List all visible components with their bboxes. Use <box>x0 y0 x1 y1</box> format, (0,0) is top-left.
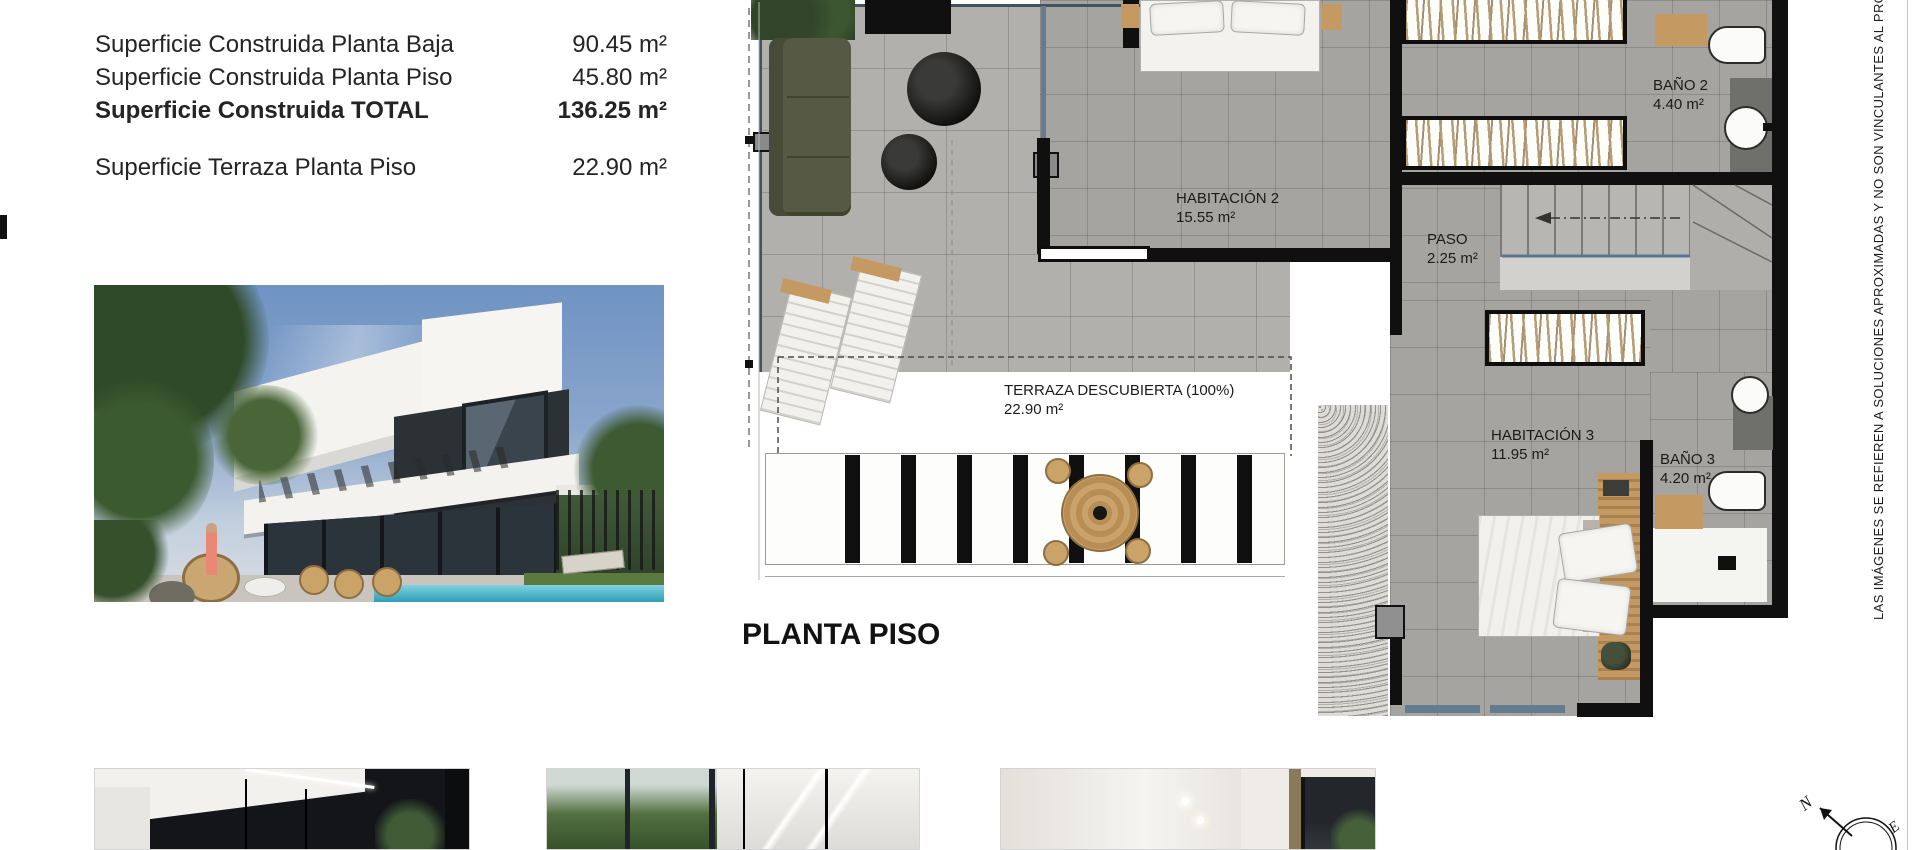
room-area: 22.90 m² <box>1004 400 1234 419</box>
pillow <box>1552 578 1632 637</box>
surface-value: 22.90 m² <box>572 151 667 184</box>
room-area: 2.25 m² <box>1427 249 1478 268</box>
toilet-bath2 <box>1708 26 1766 64</box>
window-glazing <box>1041 6 1046 138</box>
wall <box>1390 185 1402 335</box>
plants-through-glass <box>375 799 445 850</box>
window-mullion <box>709 769 715 850</box>
room-label-habitacion3: HABITACIÓN 3 11.95 m² <box>1491 426 1594 464</box>
pergola-beam <box>957 455 972 563</box>
pendant-wire <box>305 789 307 850</box>
slab-edge-line <box>765 576 1285 577</box>
pillow <box>1149 0 1225 36</box>
ceiling-spotlight <box>1181 797 1189 805</box>
surface-label: Superficie Construida TOTAL <box>95 94 429 127</box>
room-name: BAÑO 2 <box>1653 76 1708 95</box>
wardrobe-white <box>95 787 150 850</box>
nightstand-items <box>1601 642 1631 670</box>
wicker-chair2 <box>334 569 364 599</box>
room-area: 4.20 m² <box>1660 469 1715 488</box>
planter-foliage <box>751 0 855 40</box>
wall <box>1640 440 1653 716</box>
left-edge-mark <box>0 215 7 239</box>
room-area: 11.95 m² <box>1491 445 1594 464</box>
wall <box>1653 605 1788 618</box>
dining-chair <box>1125 538 1151 564</box>
room-name: PASO <box>1427 230 1478 249</box>
gravel-strip <box>1318 405 1388 716</box>
interior-photo-2 <box>546 768 920 850</box>
pergola-beam <box>1181 455 1196 563</box>
house-exterior-photo <box>94 285 664 602</box>
room-area: 15.55 m² <box>1176 208 1279 227</box>
dining-chair <box>1045 458 1071 484</box>
terrace-rail-left <box>759 4 762 372</box>
sink-bath3 <box>1731 376 1769 414</box>
wardrobe <box>1402 116 1627 170</box>
door-block <box>1375 605 1405 639</box>
pergola-beam <box>901 455 916 563</box>
brochure-page: Superficie Construida Planta Baja 90.45 … <box>0 0 1920 850</box>
table-row-total: Superficie Construida TOTAL 136.25 m² <box>95 94 667 127</box>
table-row: Superficie Construida Planta Piso 45.80 … <box>95 61 667 94</box>
interior-photo-3 <box>1000 768 1376 850</box>
room-label-terraza: TERRAZA DESCUBIERTA (100%) 22.90 m² <box>1004 381 1234 419</box>
surface-value: 90.45 m² <box>572 28 667 61</box>
surface-label: Superficie Construida Planta Baja <box>95 28 454 61</box>
wall <box>1390 0 1402 172</box>
faucet <box>1763 123 1779 131</box>
pendant-wire <box>245 779 247 850</box>
window-left <box>547 769 717 850</box>
pendant-wire <box>825 769 828 850</box>
room-name: HABITACIÓN 3 <box>1491 426 1594 445</box>
ceiling-led-diagonal <box>717 769 920 850</box>
wall <box>1390 639 1402 705</box>
nightstand-items <box>1603 480 1629 496</box>
bushes-left-foreground <box>94 520 169 602</box>
window-glazing <box>1490 705 1565 713</box>
wall <box>1150 248 1402 262</box>
pillow <box>1230 0 1306 36</box>
white-gap-strip <box>1290 372 1318 716</box>
wardrobe <box>1402 0 1627 44</box>
surface-areas-table: Superficie Construida Planta Baja 90.45 … <box>95 28 667 184</box>
dark-wall-right <box>445 769 470 850</box>
room-name: HABITACIÓN 2 <box>1176 189 1279 208</box>
vanity-bath3 <box>1655 495 1703 529</box>
room-area: 4.40 m² <box>1653 95 1708 114</box>
room-label-bano2: BAÑO 2 4.40 m² <box>1653 76 1708 114</box>
sofa-cushion-line <box>787 156 849 158</box>
planter-wall <box>865 0 951 34</box>
wicker-chair1 <box>299 565 329 595</box>
hallway-wall <box>1001 769 1241 850</box>
wicker-chair3 <box>372 567 402 597</box>
table-center <box>1093 506 1107 520</box>
wall <box>1390 172 1780 185</box>
surface-value: 45.80 m² <box>572 61 667 94</box>
stair-winder-area <box>1690 185 1772 290</box>
wood-trim <box>1289 769 1301 850</box>
wardrobe <box>1485 310 1645 366</box>
compass-north-label: N <box>1795 791 1818 815</box>
compass-icon: N E <box>1786 784 1916 850</box>
nightstand <box>1121 4 1139 28</box>
bath-mat <box>1655 14 1707 46</box>
surface-value: 136.25 m² <box>558 94 667 127</box>
wall <box>1577 703 1653 717</box>
bath3-white-floor <box>1653 528 1767 602</box>
room-name: BAÑO 3 <box>1660 450 1715 469</box>
surface-label: Superficie Terraza Planta Piso <box>95 151 416 184</box>
wall <box>1772 0 1788 618</box>
ceiling-spotlight <box>1197 817 1204 824</box>
dining-chair <box>1127 462 1153 488</box>
woman-figure <box>206 523 217 575</box>
wall <box>1037 138 1050 254</box>
round-pouf <box>881 134 937 190</box>
legal-disclaimer: LAS IMÁGENES SE REFIEREN A SOLUCIONES AP… <box>1871 0 1886 620</box>
palm-in-window <box>1331 809 1376 850</box>
window-mullion <box>625 769 630 850</box>
palm-foliage-mid <box>204 385 324 485</box>
outdoor-sofa <box>769 38 851 216</box>
pergola-beam <box>845 455 860 563</box>
toilet-bath3 <box>1708 471 1766 511</box>
nightstand <box>1322 4 1342 30</box>
sink-bath2 <box>1724 106 1768 150</box>
table-row: Superficie Construida Planta Baja 90.45 … <box>95 28 667 61</box>
sofa-cushion-line <box>787 96 849 98</box>
room-label-habitacion2: HABITACIÓN 2 15.55 m² <box>1176 189 1279 227</box>
pendant-wire <box>743 769 745 850</box>
room-label-paso: PASO 2.25 m² <box>1427 230 1478 268</box>
side-table-white <box>244 577 286 597</box>
round-pouf <box>907 52 981 126</box>
interior-photo-1 <box>94 768 470 850</box>
dining-chair <box>1043 540 1069 566</box>
room-name: TERRAZA DESCUBIERTA (100%) <box>1004 381 1234 400</box>
room-label-bano3: BAÑO 3 4.20 m² <box>1660 450 1715 488</box>
table-row: Superficie Terraza Planta Piso 22.90 m² <box>95 151 667 184</box>
surface-label: Superficie Construida Planta Piso <box>95 61 453 94</box>
pergola-beam <box>1013 455 1028 563</box>
page-edge-rule <box>1907 0 1908 850</box>
window-glazing <box>1405 705 1480 713</box>
plan-title: PLANTA PISO <box>742 618 940 652</box>
pergola-beam <box>1237 455 1252 563</box>
shower-fitting <box>1718 556 1736 570</box>
stair-landing <box>1500 257 1690 290</box>
window-framed <box>1038 246 1150 262</box>
